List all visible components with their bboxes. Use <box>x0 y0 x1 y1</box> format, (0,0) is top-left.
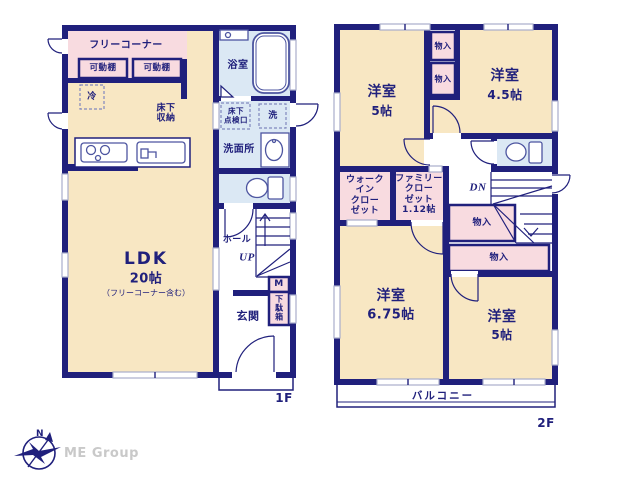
label-room-se-size: 5帖 <box>491 329 512 343</box>
label-inspection-hatch: 床下 点検口 <box>224 107 248 124</box>
toilet-bowl <box>247 179 268 198</box>
label-floor1: 1F <box>275 392 293 406</box>
label-closet-c1: 物入 <box>472 218 491 228</box>
label-compass-north: N <box>36 429 44 439</box>
label-closet-n1: 物入 <box>435 41 452 50</box>
toilet-tank <box>268 177 283 199</box>
label-room-se: 洋室 <box>488 309 517 325</box>
label-family-closet: ファミリー クロー ゼット 1.12帖 <box>395 174 443 216</box>
label-meter: M <box>274 279 283 289</box>
label-room-nw-size: 5帖 <box>371 105 392 119</box>
label-ldk-size: 20帖 <box>130 271 163 286</box>
label-hall: ホール <box>223 235 252 245</box>
label-underfloor-storage: 床下 収納 <box>156 104 175 125</box>
floor-plan-canvas: フリーコーナー 可動棚 可動棚 冷 床下 収納 浴室 床下 点検口 洗 洗面所 … <box>0 0 640 480</box>
label-room-sw-size: 6.75帖 <box>367 307 415 322</box>
label-room-ne-size: 4.5帖 <box>487 89 522 103</box>
label-free-corner: フリーコーナー <box>89 40 163 52</box>
label-washroom: 洗面所 <box>223 144 255 156</box>
f1-stairs <box>256 209 290 277</box>
label-entrance: 玄関 <box>237 311 260 324</box>
label-up: UP <box>239 252 255 265</box>
toilet-bowl <box>506 143 526 161</box>
label-down: DN <box>470 182 487 195</box>
label-room-nw: 洋室 <box>368 84 397 100</box>
f1-porch <box>219 378 293 390</box>
label-closet-c2: 物入 <box>489 253 508 263</box>
label-floor2: 2F <box>537 417 555 431</box>
label-shelf-right: 可動棚 <box>143 64 170 74</box>
label-balcony: バルコニー <box>412 390 474 402</box>
label-walk-in-closet: ウォーク イン クロー ゼット <box>346 175 384 217</box>
logo-company-name: ME Group <box>64 446 139 461</box>
label-ldk-note: （フリーコーナー含む） <box>102 288 190 297</box>
label-ldk: LDK <box>124 250 168 270</box>
label-closet-n2: 物入 <box>435 74 452 83</box>
label-room-ne: 洋室 <box>491 68 520 84</box>
label-shelf-left: 可動棚 <box>89 64 116 74</box>
label-bath: 浴室 <box>228 60 249 72</box>
toilet-tank <box>529 142 542 163</box>
label-washer: 洗 <box>268 111 278 121</box>
label-room-sw: 洋室 <box>377 288 406 304</box>
bath-vanity <box>220 30 248 40</box>
label-fridge: 冷 <box>87 92 97 102</box>
label-shoe-cabinet: 下駄箱 <box>274 295 283 322</box>
